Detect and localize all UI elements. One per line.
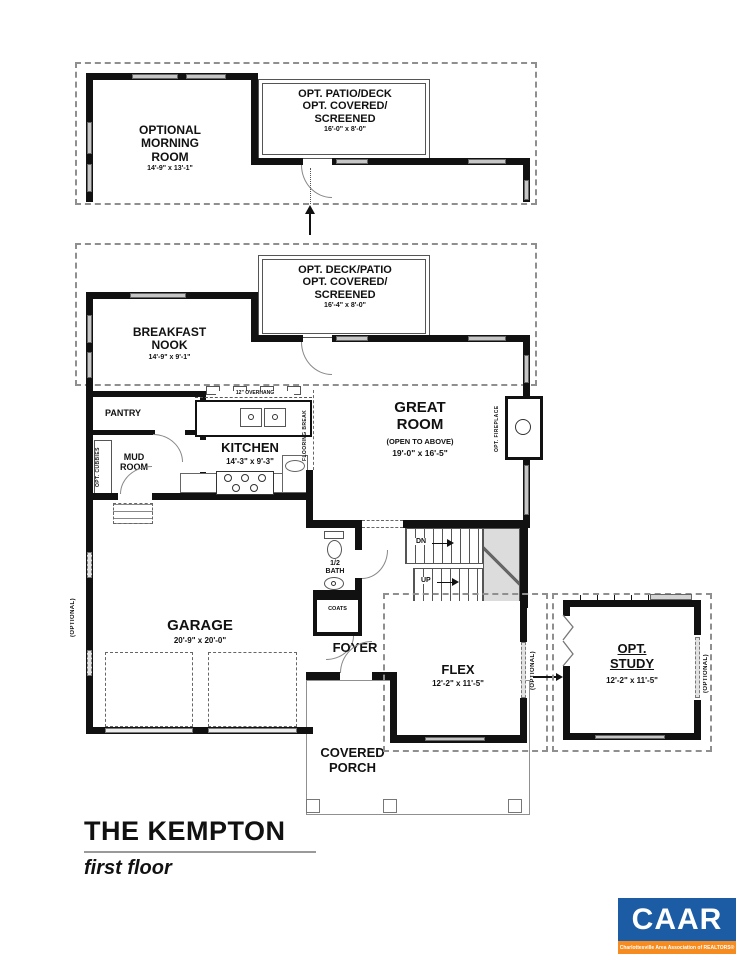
window [87,352,92,378]
porch-column [306,799,320,813]
room-dims-deck-patio: 16'-4" x 8'-0" [290,302,400,309]
window [87,315,92,343]
optional-window [695,637,700,698]
window [186,74,226,79]
window-tick [597,595,598,600]
room-dims-garage: 20'-9" x 20'-0" [120,636,280,645]
title-underline [84,851,316,853]
door-arc [362,550,388,579]
burner-icon [241,474,249,482]
window-tick [614,595,615,600]
wall [88,493,118,500]
window [595,735,665,739]
window [524,355,529,383]
room-dims-morning-room: 14'-9" x 13'-1" [110,165,230,172]
wall [251,158,303,165]
up-run-arrow-icon [452,578,459,586]
optional-window [87,552,92,578]
window [468,159,506,164]
up-arrow-line [309,213,311,235]
window [336,159,368,164]
optional-label-flex: (OPTIONAL) [530,642,540,700]
garage-door-bay [208,652,297,727]
room-dims-flex: 12'-2" x 11'-5" [408,679,508,688]
room-dims-patio-top: 16'-0" x 8'-0" [290,126,400,133]
room-label-great-room: GREAT ROOM [370,400,470,434]
burner-icon [232,484,240,492]
window-tick [580,595,581,600]
up-arrow-icon [305,205,315,214]
porch-column [383,799,397,813]
wall [390,676,397,743]
sink-drain-icon [272,414,278,420]
flooring-break-label: FLOORING BREAK [302,402,312,468]
dotted-line [310,168,311,204]
stairs-down [405,528,483,564]
wall [694,607,701,635]
room-label-flex: FLEX [408,663,508,678]
room-dims-breakfast-nook: 14'-9" x 9'-1" [112,354,227,361]
room-label-mud-room: MUD ROOM [108,452,160,472]
wall [306,520,362,528]
garage-door [105,728,193,733]
room-label-garage: GARAGE [120,618,280,635]
overhang-label: 12" OVERHANG [216,391,294,397]
plan-subtitle: first floor [84,857,172,880]
window [524,180,529,200]
room-label-pantry: PANTRY [92,408,154,418]
window [468,336,506,341]
window [130,293,186,298]
burner-icon [250,484,258,492]
caar-logo: CAAR Charlottesville Area Association of… [618,898,736,954]
window [132,74,178,79]
room-label-patio-top: OPT. PATIO/DECK OPT. COVERED/ SCREENED [290,88,400,125]
wall [520,698,527,743]
sink-drain-icon [248,414,254,420]
toilet-tank-icon [324,531,344,539]
garage-door-bay [105,652,193,727]
wall [93,391,205,397]
burner-icon [258,474,266,482]
burner-icon [224,474,232,482]
room-label-breakfast-nook: BREAKFAST NOOK [112,326,227,353]
wall [251,335,303,342]
wall [563,666,570,740]
dn-arrow-line [432,543,448,544]
dn-arrow-icon [447,539,454,547]
window [524,465,529,515]
room-label-half-bath: 1/2 BATH [313,560,357,576]
window-tick [631,595,632,600]
optional-window [521,642,526,698]
wall [403,520,530,528]
room-label-kitchen: KITCHEN [200,441,300,456]
wall [355,528,362,550]
flooring-break-line [313,390,314,470]
room-dims-study: 12'-2" x 11'-5" [582,676,682,685]
wall [251,73,258,165]
fireplace-flue-icon [515,419,531,435]
porch-column [508,799,522,813]
wall [93,430,155,435]
garage-door [208,728,297,733]
stairs-up-label: UP [420,577,432,584]
sink-drain-icon [331,581,336,586]
wall [563,600,701,607]
plan-title: THE KEMPTON [84,816,286,847]
window [336,336,368,341]
window [425,737,485,741]
room-label-morning-room: OPTIONAL MORNING ROOM [110,124,230,164]
optional-label-study: (OPTIONAL) [703,645,713,703]
opt-fireplace-label: OPT. FIREPLACE [494,398,504,460]
room-label-deck-patio: OPT. DECK/PATIO OPT. COVERED/ SCREENED [290,264,400,301]
cased-opening [362,520,403,528]
coats-closet [313,596,362,636]
up-run-arrow-line [437,582,453,583]
garage-steps [113,503,153,524]
room-label-coats: COATS [315,606,360,612]
overhang-line [195,397,312,398]
floor-plan: OPTIONAL MORNING ROOM 14'-9" x 13'-1" OP… [0,0,741,960]
optional-label-garage: (OPTIONAL) [70,588,80,648]
french-door-icon [560,614,576,668]
caar-logo-box: CAAR [618,898,736,941]
wall [520,608,527,642]
room-note-great-room: (OPEN TO ABOVE) [365,437,475,446]
toilet-icon [327,540,342,559]
stairs-dn-label: DN [415,538,427,545]
caar-logo-tagline: Charlottesville Area Association of REAL… [618,941,736,954]
window [87,122,92,154]
room-label-study: OPT. STUDY [582,642,682,671]
optional-window [87,650,92,676]
window-tick [648,595,649,600]
wall [306,672,340,680]
window [87,164,92,192]
room-dims-great-room: 19'-0" x 16'-5" [370,448,470,458]
